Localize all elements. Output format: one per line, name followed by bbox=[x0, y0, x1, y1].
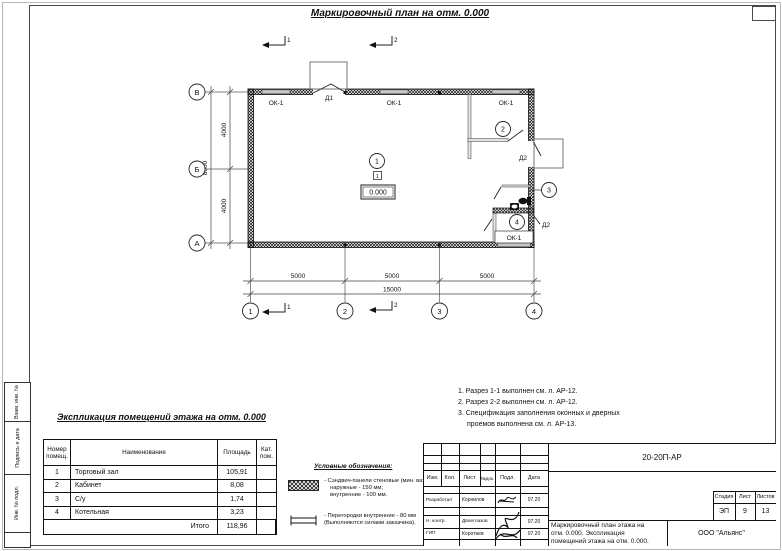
partitions bbox=[468, 95, 529, 243]
section-mark-2-bottom: 2 bbox=[369, 301, 398, 313]
stamp-line bbox=[424, 455, 548, 456]
room-name-cell: Кабинет bbox=[71, 480, 218, 494]
stamp-line bbox=[548, 471, 776, 472]
company-name: ООО "Альянс" bbox=[667, 520, 776, 546]
exterior-walls bbox=[248, 89, 534, 248]
explication-table: Номер помещ. Наименование Площадь Кат. п… bbox=[43, 439, 277, 535]
svg-text:1: 1 bbox=[287, 304, 291, 311]
wall-studs bbox=[344, 91, 442, 247]
stamp-title-line: помещений этажа на отм. 0.000. bbox=[551, 538, 665, 546]
col-header-area: Площадь bbox=[218, 440, 257, 466]
note-line: 2. Разрез 2-2 выполнен см. л. АР-12. bbox=[458, 397, 620, 408]
total-label-cell: Итого bbox=[44, 520, 218, 534]
sheet-label: Лист bbox=[735, 491, 755, 503]
margin-cell-empty bbox=[5, 532, 30, 546]
signature-developer bbox=[496, 494, 518, 506]
room-cat-cell bbox=[257, 466, 276, 480]
margin-cell-podpis: Подпись и дата bbox=[5, 421, 30, 475]
room-number-cell: 1 bbox=[44, 466, 71, 480]
axis-col-1: 1 bbox=[248, 307, 252, 316]
dim-4000-top: 4000 bbox=[221, 122, 228, 137]
dim-4000-bottom: 4000 bbox=[221, 198, 228, 213]
stamp-line bbox=[424, 463, 548, 464]
col-izm: Изм. bbox=[424, 470, 441, 486]
col-header-cat: Кат. пом. bbox=[257, 440, 276, 466]
margin-label: Инв. № подл. bbox=[15, 486, 21, 520]
margin-label: Подпись и дата bbox=[15, 428, 21, 468]
dim-5000-2: 5000 bbox=[385, 273, 400, 280]
section-mark-1-bottom: 1 bbox=[262, 303, 291, 315]
col-header-name: Наименование bbox=[71, 440, 218, 466]
drawing-sheet: Маркировочный план на отм. 0.000 bbox=[0, 0, 782, 551]
section-mark-2-top: 2 bbox=[369, 36, 398, 48]
dim-5000-3: 5000 bbox=[480, 273, 495, 280]
date-developer: 07.20 bbox=[520, 493, 548, 507]
room-area-cell: 105,91 bbox=[218, 466, 257, 480]
window-label-4: ОК-1 bbox=[507, 235, 522, 242]
role-gip: ГИП bbox=[424, 528, 461, 539]
room-cat-cell bbox=[257, 493, 276, 507]
window-label-2: ОК-1 bbox=[387, 100, 402, 107]
stage-label: Стадия bbox=[713, 491, 735, 503]
stamp-line bbox=[424, 486, 548, 487]
signature-flourish bbox=[492, 506, 522, 544]
dim-15000: 15000 bbox=[383, 287, 401, 294]
door2-leader bbox=[534, 216, 540, 224]
door1-label: Д1 bbox=[325, 95, 333, 102]
col-kol: Кол. bbox=[441, 470, 459, 486]
elevation-value: 0.000 bbox=[369, 190, 387, 197]
total-area-cell: 118,96 bbox=[218, 520, 257, 534]
sink-icon bbox=[510, 203, 519, 210]
axis-col-4: 4 bbox=[532, 307, 536, 316]
room-number-cell: 4 bbox=[44, 507, 71, 521]
note-line: проемов выполнена см. л. АР-13. bbox=[458, 419, 620, 430]
title-block: Изм. Кол. Лист №док. Подл. Дата Разработ… bbox=[423, 443, 776, 546]
room4-number: 4 bbox=[515, 220, 519, 227]
stamp-doc-title: Маркировочный план этажа на отм. 0.000. … bbox=[551, 522, 665, 546]
col-ndoc: №док. bbox=[480, 470, 495, 486]
col-data: Дата bbox=[520, 470, 548, 486]
axis-row-v: В bbox=[194, 88, 199, 97]
room-area-cell: 1,74 bbox=[218, 493, 257, 507]
plan-title: Маркировочный план на отм. 0.000 bbox=[270, 8, 530, 19]
left-dimension-lines bbox=[208, 86, 233, 249]
room-number-cell: 3 bbox=[44, 493, 71, 507]
date-ncontrol: 07.20 bbox=[520, 515, 548, 528]
svg-text:2: 2 bbox=[394, 37, 398, 44]
axis-bubbles bbox=[189, 84, 542, 319]
door2-label-b: Д2 bbox=[542, 222, 550, 229]
door-leaf-room3 bbox=[494, 187, 501, 199]
margin-cell-vzam: Взам. инв. № bbox=[5, 383, 30, 422]
col-list: Лист bbox=[459, 470, 480, 486]
notes-block: 1. Разрез 1-1 выполнен см. л. АР-12. 2. … bbox=[458, 386, 620, 430]
sheet-value: 9 bbox=[735, 503, 755, 520]
sheets-value: 13 bbox=[755, 503, 776, 520]
note-line: 3. Спецификация заполнения оконных и две… bbox=[458, 408, 620, 419]
room-area-cell: 3,23 bbox=[218, 507, 257, 521]
toilet-icon bbox=[519, 197, 532, 205]
room-name-cell: Котельная bbox=[71, 507, 218, 521]
sandwich-panel-symbol bbox=[288, 480, 319, 491]
axis-row-b: Б bbox=[195, 165, 200, 174]
room-number-cell: 2 bbox=[44, 480, 71, 494]
room-cat-cell bbox=[257, 507, 276, 521]
margin-strip: Взам. инв. № Подпись и дата Инв. № подл. bbox=[4, 382, 31, 548]
note-line: 1. Разрез 1-1 выполнен см. л. АР-12. bbox=[458, 386, 620, 397]
col-podp: Подл. bbox=[495, 470, 520, 486]
total-cat-cell bbox=[257, 520, 276, 534]
role-developer: Разработал bbox=[424, 493, 461, 507]
section-mark-1-top: 1 bbox=[262, 36, 291, 48]
room-cat-cell bbox=[257, 480, 276, 494]
room-area-cell: 8,08 bbox=[218, 480, 257, 494]
axis-row-a: А bbox=[194, 239, 199, 248]
explication-title: Экспликация помещений этажа на отм. 0.00… bbox=[57, 412, 266, 422]
stamp-title-line: отм. 0.000. Экспликация bbox=[551, 530, 665, 538]
windows bbox=[262, 90, 531, 247]
doc-number: 20-20П-АР bbox=[548, 444, 776, 471]
door2-label-a: Д2 bbox=[519, 155, 527, 162]
role-ncontrol: Н. контр. bbox=[424, 515, 461, 528]
room3-number: 3 bbox=[547, 188, 551, 195]
room2-number: 2 bbox=[501, 127, 505, 134]
floor-type: 1 bbox=[376, 174, 379, 180]
room1-number: 1 bbox=[375, 159, 379, 166]
stamp-title-line: Маркировочный план этажа на bbox=[551, 522, 665, 530]
entrance-porch-right bbox=[534, 139, 563, 168]
door-leaf-room4 bbox=[484, 219, 492, 231]
date-gip: 07.20 bbox=[520, 528, 548, 539]
room-name-cell: С/у bbox=[71, 493, 218, 507]
partition-symbol bbox=[288, 515, 319, 526]
stamp-line bbox=[424, 539, 548, 540]
window-label-3: ОК-1 bbox=[499, 100, 514, 107]
stage-value: ЭП bbox=[713, 503, 735, 520]
room-name-cell: Торговый зал bbox=[71, 466, 218, 480]
svg-text:1: 1 bbox=[287, 37, 291, 44]
svg-text:2: 2 bbox=[394, 302, 398, 309]
floor-plan: ОК-1 ОК-1 ОК-1 ОК-1 Д1 Д2 Д2 1 2 3 4 1 0… bbox=[185, 20, 665, 332]
axis-col-3: 3 bbox=[437, 307, 441, 316]
axis-col-2: 2 bbox=[343, 307, 347, 316]
window-label-1: ОК-1 bbox=[269, 100, 284, 107]
stamp-line bbox=[424, 507, 548, 508]
name-developer: Корнилов bbox=[460, 493, 497, 507]
corner-sheet-box bbox=[752, 6, 776, 21]
margin-cell-inv: Инв. № подл. bbox=[5, 474, 30, 533]
sheets-label: Листов bbox=[755, 491, 776, 503]
col-header-number: Номер помещ. bbox=[44, 440, 71, 466]
dim-5000-1: 5000 bbox=[291, 273, 306, 280]
margin-label: Взам. инв. № bbox=[15, 385, 21, 419]
